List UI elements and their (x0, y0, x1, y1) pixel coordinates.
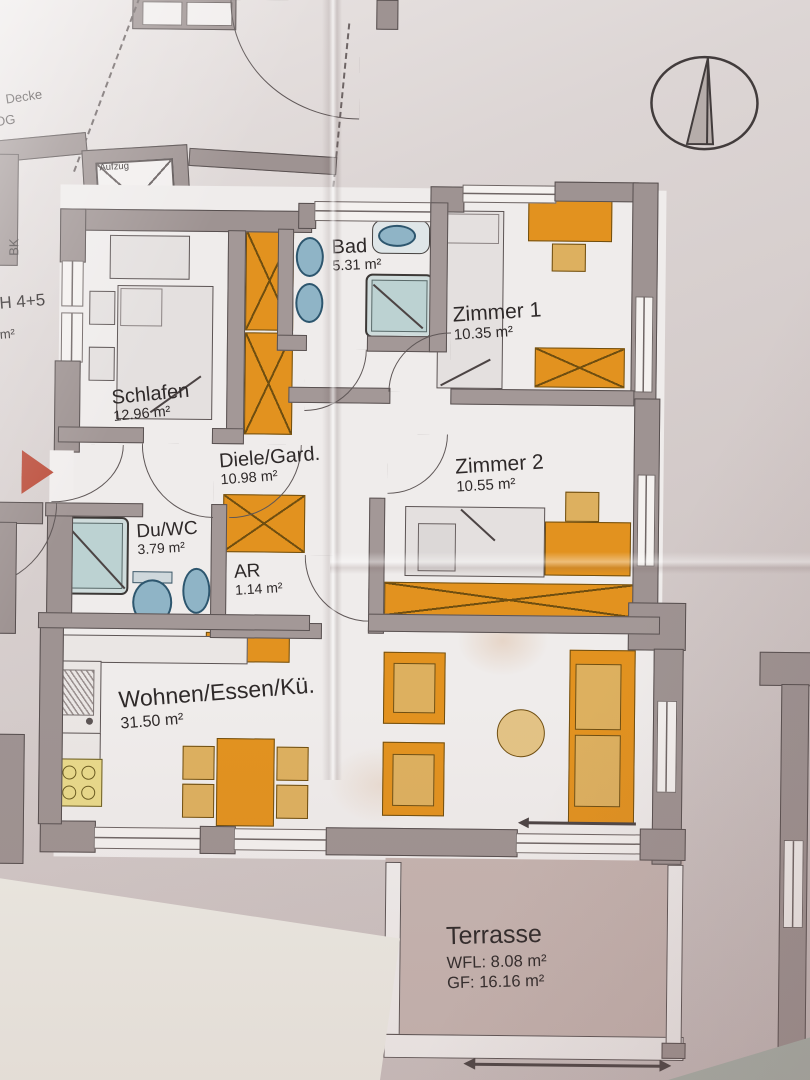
nightstand-symbol (89, 291, 115, 325)
pillow-symbol (441, 213, 499, 244)
armchair-cushion (392, 754, 435, 806)
nightstand-symbol (89, 347, 115, 381)
wall-segment (212, 428, 244, 444)
room-label-zimmer2: Zimmer 2 10.55 m² (454, 450, 545, 496)
annotation-unit: H 4+5 (0, 290, 46, 312)
chair-symbol (276, 747, 308, 781)
chair-symbol (552, 244, 586, 272)
window (462, 185, 556, 204)
room-name: Terrasse (446, 920, 547, 950)
burner (81, 766, 95, 780)
wall-segment (326, 827, 518, 857)
north-arrow-graphic (647, 53, 762, 154)
burner (62, 785, 76, 799)
burner (62, 765, 76, 779)
armchair-cushion (393, 663, 436, 713)
sofa-symbol (568, 650, 636, 825)
dresser-symbol (110, 235, 190, 280)
wardrobe-symbol (534, 347, 624, 388)
wall-segment (60, 208, 312, 233)
room-label-diele: Diele/Gard. 10.98 m² (218, 443, 322, 489)
terrace-gf: GF: 16.16 m² (447, 972, 547, 993)
window (234, 828, 328, 851)
wall-segment (429, 202, 449, 352)
elevator-label: Aufzug (99, 162, 129, 174)
arrowhead-right (659, 1060, 671, 1072)
sofa-cushion (574, 735, 621, 807)
terrace-wall (383, 1034, 683, 1061)
fold-crease-horizontal (330, 552, 810, 574)
wall-segment (58, 426, 144, 443)
wall-segment (554, 182, 638, 203)
fold-crease-vertical (322, 0, 342, 780)
shower-symbol (365, 274, 434, 339)
room-label-terrasse: Terrasse WFL: 8.08 m² GF: 16.16 m² (446, 920, 548, 993)
wardrobe-symbol (384, 582, 634, 619)
wall-segment (376, 0, 398, 30)
room-label-zimmer1: Zimmer 1 10.35 m² (452, 298, 543, 344)
terrace-sliding-door (516, 833, 642, 854)
chair-symbol (182, 784, 214, 818)
north-arrow (647, 53, 762, 154)
annotation-bk: BK (7, 238, 22, 255)
stove-symbol (56, 758, 103, 806)
wall-segment (277, 335, 307, 351)
wall-segment (759, 652, 810, 687)
coffee-table-symbol (497, 709, 546, 758)
pillow-symbol (120, 288, 162, 326)
chair-symbol (565, 492, 599, 522)
window (94, 827, 202, 850)
armchair-symbol (382, 742, 445, 817)
bathtub-basin (378, 225, 416, 247)
wall-segment (60, 208, 87, 262)
wall-segment (38, 622, 64, 824)
wall-segment (0, 502, 43, 525)
room-area: 1.14 m² (235, 580, 283, 598)
wall-segment (0, 734, 25, 864)
window (634, 296, 653, 392)
faucet-dot (86, 718, 93, 725)
wall-segment (38, 612, 310, 631)
room-label-duwc: Du/WC 3.79 m² (136, 518, 199, 559)
dining-table-symbol (216, 738, 275, 827)
terrace-dimension-arrow (471, 1063, 663, 1068)
wall-segment (661, 1043, 685, 1059)
arrowhead-left (463, 1058, 475, 1070)
wall-segment (368, 614, 660, 635)
wall-segment (200, 826, 236, 854)
wall-segment (226, 230, 246, 434)
chair-symbol (182, 746, 214, 780)
annotation-decke: Decke (5, 87, 44, 107)
window (783, 840, 804, 928)
wall-segment (277, 229, 294, 351)
window (186, 2, 232, 26)
terrace-wfl: WFL: 8.08 m² (446, 952, 546, 973)
window (61, 260, 83, 306)
wall-segment (640, 828, 686, 860)
window (142, 1, 182, 25)
terrace-wall (666, 865, 684, 1053)
wall-segment (45, 502, 143, 517)
wall-segment (210, 504, 227, 630)
chair-symbol (276, 785, 308, 819)
annotation-unit-area: 2 m² (0, 327, 16, 343)
wall-segment (40, 820, 96, 853)
window (656, 701, 677, 793)
annotation-og: OG (0, 112, 16, 129)
floorplan-photo: Aufzug (0, 0, 810, 1080)
burner (81, 786, 95, 800)
sofa-cushion (575, 664, 622, 730)
window (61, 312, 84, 362)
wall-segment (450, 388, 634, 406)
wall-segment (188, 148, 337, 175)
armchair-symbol (383, 652, 446, 725)
room-label-schlafen: Schlafen 12.96 m² (111, 380, 192, 426)
room-label-ar: AR 1.14 m² (233, 559, 283, 599)
sink-drainer (62, 669, 94, 715)
wall-segment (0, 522, 17, 634)
